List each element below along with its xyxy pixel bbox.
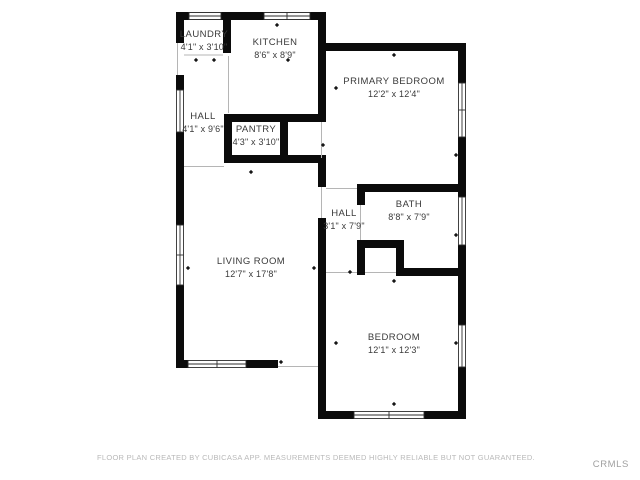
room-label-living-room: LIVING ROOM 12'7" x 17'8" [217,256,285,280]
floor-plan-drawing [0,0,640,480]
room-label-bedroom: BEDROOM 12'1" x 12'3" [368,332,420,356]
room-name: BEDROOM [368,332,420,344]
room-name: LIVING ROOM [217,256,285,268]
room-name: LAUNDRY [180,29,228,41]
room-dimensions: 12'2" x 12'4" [343,88,444,100]
room-name: PRIMARY BEDROOM [343,76,444,88]
room-label-laundry: LAUNDRY 4'1" x 3'10" [180,29,228,53]
room-dimensions: 12'1" x 12'3" [368,344,420,356]
room-label-primary-bedroom: PRIMARY BEDROOM 12'2" x 12'4" [343,76,444,100]
room-name: KITCHEN [253,37,298,49]
room-name: PANTRY [233,124,280,136]
room-label-hall-upper: HALL 4'1" x 9'6" [182,111,224,135]
room-dimensions: 8'6" x 8'9" [253,49,298,61]
floor-plan-canvas: LAUNDRY 4'1" x 3'10" KITCHEN 8'6" x 8'9"… [0,0,640,480]
room-name: BATH [388,199,430,211]
room-label-hall-lower: HALL 3'1" x 7'9" [323,208,365,232]
room-name: HALL [182,111,224,123]
room-name: HALL [323,208,365,220]
room-dimensions: 4'3" x 3'10" [233,136,280,148]
room-dimensions: 12'7" x 17'8" [217,268,285,280]
room-dimensions: 3'1" x 7'9" [323,220,365,232]
disclaimer-text: FLOOR PLAN CREATED BY CUBICASA APP. MEAS… [0,453,632,462]
crmls-watermark: CRMLS [593,459,629,470]
room-dimensions: 4'1" x 9'6" [182,123,224,135]
room-label-bath: BATH 8'8" x 7'9" [388,199,430,223]
room-dimensions: 8'8" x 7'9" [388,211,430,223]
room-label-kitchen: KITCHEN 8'6" x 8'9" [253,37,298,61]
room-dimensions: 4'1" x 3'10" [180,41,228,53]
room-label-pantry: PANTRY 4'3" x 3'10" [233,124,280,148]
